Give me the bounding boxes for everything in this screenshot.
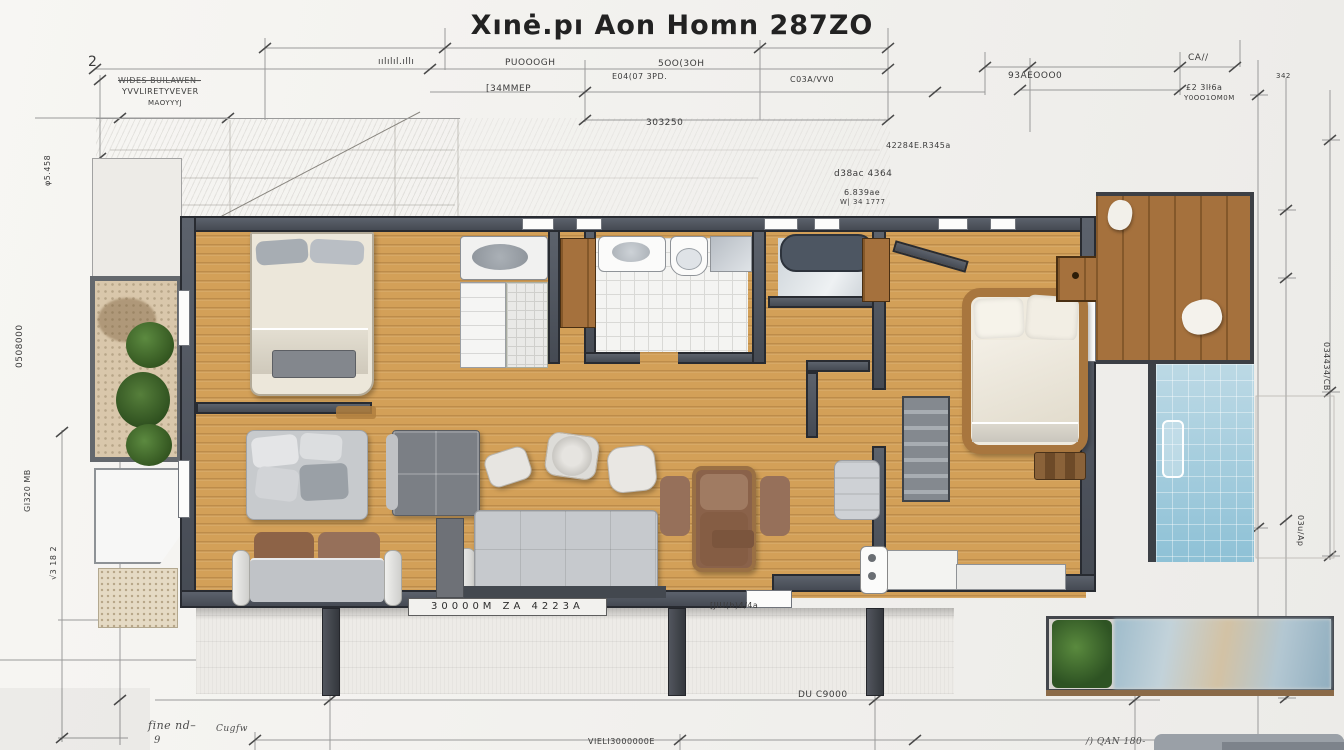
annotation-label: 303250 [646, 119, 683, 128]
annotation-label: 2 [88, 55, 97, 69]
annotation-label: DU C9000 [798, 691, 848, 700]
annotation-label: MAOYYYJ [148, 100, 182, 107]
annotation-label: £2 3Ił6a [1186, 84, 1222, 92]
annotation-label: /) QAN 180- [1086, 738, 1146, 747]
annotation-label: 9 [154, 736, 161, 746]
annotation-label: 5OO(3OH [658, 60, 704, 69]
annotation-label: 6.839ae [844, 189, 880, 197]
annotation-label: C03A/VV0 [790, 76, 834, 84]
annotation-layer: 2ıılılıl.ıllıWIĐES BUILAWEN–YVVLIRETYVEV… [0, 0, 1344, 750]
annotation-label: d38ac 4364 [834, 170, 892, 179]
annotation-label: E04(07 3PD. [612, 73, 667, 81]
annotation-label: 42284E.R345a [886, 142, 951, 150]
annotation-label: ıılılıl.ıllı [378, 58, 414, 67]
annotation-label: 342 [1276, 73, 1291, 80]
floorplan-rendering: Xınė.pı Aon Homn 287ZO 2ıılılıl.ıllıWIĐE… [0, 0, 1344, 750]
annotation-label: CA// [1188, 54, 1209, 63]
annotation-label: 0508000 [16, 324, 25, 368]
annotation-label: VIELI3000000E [588, 738, 655, 746]
annotation-label: Cugfw [216, 725, 248, 734]
annotation-label: 93AEOOO0 [1008, 72, 1062, 81]
annotation-label: W| 34 1777 [840, 199, 885, 206]
annotation-label: fine nd– [148, 720, 196, 731]
annotation-label: 034434/CB [1322, 342, 1330, 391]
annotation-label: 03u/Ap [1296, 515, 1304, 547]
annotation-label: WIĐES BUILAWEN– [118, 77, 201, 85]
annotation-label: √3 18 2 [50, 546, 58, 580]
annotation-label: φ5.458 [44, 155, 52, 186]
annotation-label: [JIU(b)4/4a [710, 602, 758, 610]
annotation-label: 30000M ZA 4223A [408, 598, 607, 616]
annotation-label: GI320 MB [24, 469, 32, 512]
annotation-label: [34MMEP [486, 85, 531, 94]
pool-ladder [1162, 420, 1184, 478]
annotation-label: Y0OO1OM0M [1184, 95, 1235, 102]
annotation-label: PUOOOGH [505, 59, 556, 68]
annotation-label: YVVLIRETYVEVER [122, 88, 199, 96]
